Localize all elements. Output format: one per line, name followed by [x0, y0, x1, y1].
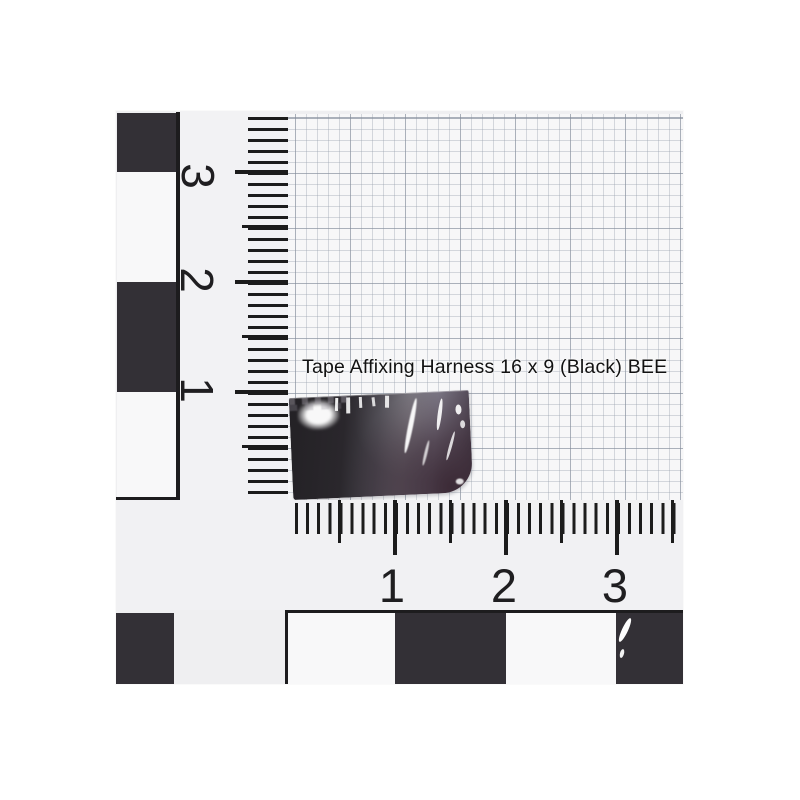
horizontal-ruler-tick-2: [504, 500, 508, 555]
product-label: Tape Affixing Harness 16 x 9 (Black) BEE: [302, 356, 667, 379]
vertical-ruler-tick-1: [235, 390, 288, 394]
tape-highlight: [359, 397, 362, 408]
horizontal-ruler-half-tick: [449, 500, 452, 543]
checker-square-white: [506, 613, 616, 684]
checker-square-white: [117, 392, 177, 499]
tape-highlight-streak: [436, 398, 444, 430]
tape-highlight-streak: [403, 398, 419, 454]
vertical-ruler-half-tick: [242, 445, 288, 448]
horizontal-ruler-half-tick: [671, 500, 674, 543]
horizontal-ruler-half-tick: [560, 500, 563, 543]
vertical-ruler-number-1: 1: [177, 370, 217, 410]
checker-square-white: [285, 613, 395, 684]
vertical-ruler-half-tick: [242, 225, 288, 228]
vertical-ruler-number-3: 3: [178, 156, 218, 196]
checker-square-black: [117, 282, 177, 392]
product-photo-canvas: 3 2 1 Tape Affixing Harness 16 x 9 (Blac…: [0, 0, 800, 800]
checker-square-black: [395, 613, 506, 684]
horizontal-ruler-half-tick: [338, 500, 341, 543]
tape-highlight-dot: [456, 478, 464, 484]
checker-square-black: [616, 613, 683, 684]
horizontal-ruler-tick-1: [393, 500, 397, 555]
tape-highlight-dot: [460, 420, 465, 428]
horizontal-ruler-tick-3: [615, 500, 619, 555]
measurement-photo: 3 2 1 Tape Affixing Harness 16 x 9 (Blac…: [116, 111, 683, 684]
horizontal-ruler-number-3: 3: [595, 566, 635, 606]
checker-square-white: [117, 172, 177, 282]
tape-object: [289, 390, 473, 500]
tape-highlight-streak: [445, 431, 456, 461]
vertical-ruler-tick-3: [235, 170, 288, 174]
checker-square-black: [116, 613, 174, 684]
vertical-ruler-tick-2: [235, 280, 288, 284]
horizontal-ruler-number-2: 2: [484, 566, 524, 606]
tape-highlight: [385, 396, 389, 408]
scratch-mark: [619, 649, 625, 659]
horizontal-ruler-number-1: 1: [372, 566, 412, 606]
checker-square-black: [117, 113, 177, 172]
tape-highlight-dot: [455, 404, 461, 414]
vertical-ruler-half-tick: [242, 335, 288, 338]
tape-highlight-streak: [421, 440, 430, 466]
scratch-mark: [617, 617, 633, 643]
horizontal-ruler-minor-ticks: [295, 503, 677, 534]
tape-highlight: [372, 397, 376, 406]
vertical-ruler-number-2: 2: [177, 260, 217, 300]
